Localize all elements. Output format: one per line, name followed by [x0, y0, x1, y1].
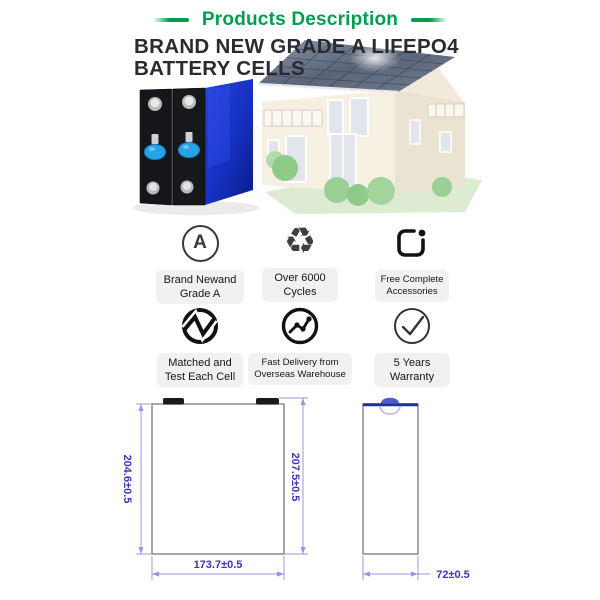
product-description-page: Products Description BRAND NEW GRADE A L…	[0, 0, 600, 600]
balcony-right	[428, 104, 464, 117]
delivery-chart-icon	[278, 304, 322, 348]
section-header: Products Description	[0, 6, 600, 34]
battery-side-view-drawing	[363, 398, 418, 554]
balcony-left	[264, 110, 322, 126]
dim-depth: 72±0.5	[436, 569, 470, 581]
header-rule-left	[153, 18, 189, 22]
headline-line2: BATTERY CELLS	[134, 58, 459, 80]
section-title: Products Description	[202, 9, 398, 31]
grade-a-icon: A	[182, 225, 219, 262]
feature-label: 5 Years Warranty	[374, 353, 450, 387]
feature-label: Brand Newand Grade A	[156, 270, 245, 304]
product-headline: BRAND NEW GRADE A LIFEPO4 BATTERY CELLS	[134, 36, 459, 79]
headline-line1: BRAND NEW GRADE A LIFEPO4	[134, 36, 459, 58]
check-circle-icon	[390, 304, 434, 348]
matched-pulse-icon	[178, 304, 222, 348]
feature-label: Matched and Test Each Cell	[157, 353, 243, 387]
header-rule-right	[411, 18, 447, 22]
dim-width: 173.7±0.5	[194, 559, 243, 571]
accessories-box-icon	[394, 225, 430, 261]
feature-label: Free Complete Accessories	[375, 270, 450, 302]
dimension-drawing: 204.6±0.5 207.5±0.5 173.7±0.5 72±0.5	[0, 385, 600, 600]
grade-a-letter: A	[193, 232, 207, 254]
battery-cells-photo	[132, 79, 260, 215]
feature-accessories: Free Complete Accessories	[346, 220, 478, 302]
feature-label: Fast Delivery from Overseas Warehouse	[248, 353, 352, 385]
battery-front-view-drawing	[152, 398, 284, 554]
dim-front-height: 204.6±0.5	[121, 455, 133, 504]
recycle-icon: ♻	[284, 223, 316, 259]
feature-warranty: 5 Years Warranty	[346, 303, 478, 387]
dim-total-height: 207.5±0.5	[289, 453, 301, 502]
feature-label: Over 6000 Cycles	[262, 268, 338, 302]
